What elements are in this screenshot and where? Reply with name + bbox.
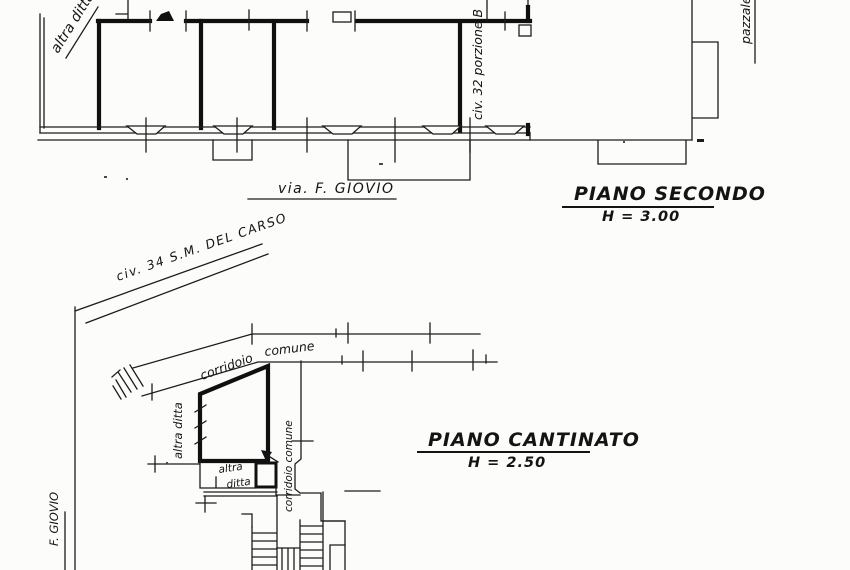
wall-right-boundary [692, 0, 718, 140]
ramp-hatching [112, 365, 143, 399]
top-right-rect [519, 25, 531, 36]
shaft-rect [333, 12, 351, 22]
walls-interior [99, 21, 460, 131]
unit-label: civ. 32 porzione B [470, 9, 485, 120]
unit-walls [200, 366, 268, 461]
wall-left-boundary [40, 14, 44, 133]
neighbor-small-1: altra [218, 461, 244, 476]
side-area-label: pazzale [738, 0, 753, 45]
neighbor-label-vertical: altra ditta [171, 402, 185, 459]
street-label-vertical: F. GIOVIO [47, 492, 61, 546]
top-right-fragments [487, 0, 528, 21]
corridor-word-1: corridoio [198, 350, 255, 383]
floorplan-scan: altra ditta civ. 32 porzione B pazzale v… [0, 0, 850, 570]
lower-title: PIANO CANTINATO [428, 429, 640, 451]
upper-plan: altra ditta civ. 32 porzione B pazzale v… [38, 0, 766, 225]
cellar-square [256, 463, 276, 487]
street-line-vertical [65, 307, 75, 570]
street-label-upper: via. F. GIOVIO [278, 181, 395, 197]
lower-height: H = 2.50 [468, 455, 546, 471]
upper-height: H = 3.00 [602, 209, 680, 225]
corridor-word-2: comune [264, 338, 316, 359]
wall-stub-top [116, 0, 128, 19]
floorplan-drawing: altra ditta civ. 32 porzione B pazzale v… [0, 0, 850, 570]
upper-title: PIANO SECONDO [574, 183, 766, 205]
corridor-lower-line [142, 362, 497, 396]
street-mark [697, 139, 704, 142]
corridor-vertical-label: corridoio comune [283, 420, 295, 512]
lightwells [213, 140, 686, 180]
lower-plan: civ. 34 S.M. DEL CARSO corridoio comune … [47, 209, 640, 570]
door-symbol [156, 11, 174, 21]
neighbor-small-2: ditta [226, 476, 252, 491]
street-diagonal-label: civ. 34 S.M. DEL CARSO [114, 209, 289, 283]
